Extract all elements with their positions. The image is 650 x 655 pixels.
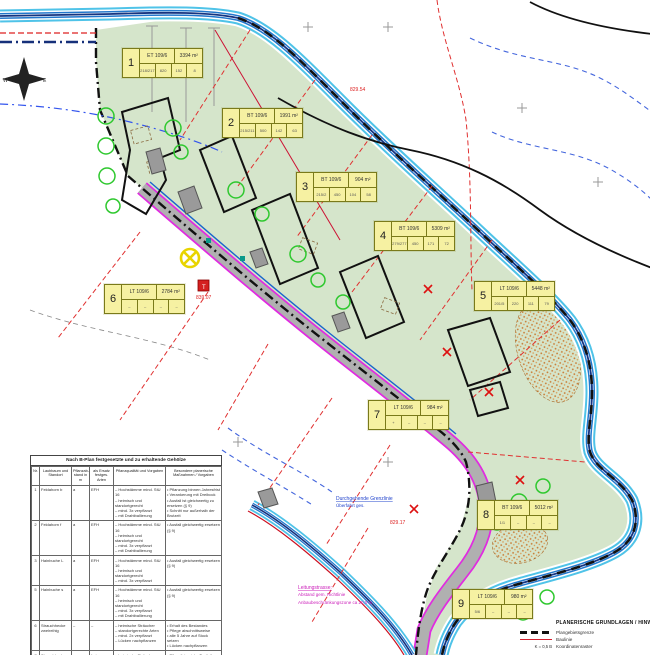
table-cell: – Hochstämme mind. StU 16 – heimisch und… bbox=[114, 485, 166, 520]
parcel-label-7: 7LT 109/6984 m²+––– bbox=[368, 400, 449, 430]
table-cell: – Hochstämme mind. StU 16 – heimisch und… bbox=[114, 556, 166, 586]
map-annotation: 829.17 bbox=[390, 520, 406, 526]
legend-label: Baulinie bbox=[556, 637, 572, 642]
table-cell: Hainbuche s bbox=[40, 585, 72, 620]
table-cell: 1 bbox=[32, 485, 40, 520]
table-cell: – Hochstämme mind. StU 16 – heimisch und… bbox=[114, 585, 166, 620]
parcel-detail-cell: – bbox=[511, 516, 527, 530]
parcel-detail-cell: 215/2 bbox=[314, 188, 330, 202]
legend-row: K = 0,5 BKoordinatenraster bbox=[518, 643, 648, 650]
parcel-code: LT 109/6 bbox=[386, 401, 421, 415]
map-annotation: Überfahrt ges. bbox=[336, 502, 365, 508]
parcel-label-3: 3BT 109/6904 m²215/245010458 bbox=[296, 172, 377, 202]
parcel-code: BT 109/6 bbox=[314, 173, 349, 187]
legend-title: PLANERISCHE GRUNDLAGEN / HINWEISE bbox=[518, 620, 648, 626]
red-line-sample bbox=[518, 639, 552, 641]
table-row: 2Feldahorn faEFH– Hochstämme mind. StU 1… bbox=[32, 520, 222, 555]
parcel-number: 9 bbox=[453, 590, 470, 618]
table-cell: • Erhalt des Bestandes • Pflege abschnit… bbox=[166, 621, 222, 651]
map-annotation: 829.54 bbox=[350, 87, 366, 93]
parcel-detail-cell: – bbox=[418, 416, 434, 430]
table-row: 5Hainbuche saEFH– Hochstämme mind. StU 1… bbox=[32, 585, 222, 620]
parcel-detail-cell: – bbox=[486, 605, 502, 619]
parcel-detail-cell: 142 bbox=[272, 124, 288, 138]
parcel-label-6: 6LT 109/62784 m²–––– bbox=[104, 284, 185, 314]
parcel-number: 4 bbox=[375, 222, 392, 250]
table-cell: a bbox=[72, 485, 90, 520]
table-cell: 6 bbox=[32, 621, 40, 651]
parcel-detail-cell: 215/211 bbox=[240, 124, 256, 138]
parcel-detail-cell: 1/1 bbox=[495, 516, 511, 530]
table-cell: a bbox=[72, 556, 90, 586]
parcel-number: 7 bbox=[369, 401, 386, 429]
legend-sample-text: K = 0,5 B bbox=[518, 644, 552, 649]
parcel-code: BT 109/6 bbox=[240, 109, 275, 123]
parcel-code: LT 109/6 bbox=[122, 285, 157, 299]
table-cell: EFH bbox=[90, 585, 114, 620]
parcel-detail-cell: 220 bbox=[508, 297, 524, 311]
parcel-detail-cell: – bbox=[154, 300, 170, 314]
parcel-number: 1 bbox=[123, 49, 140, 77]
parcel-detail-cell: – bbox=[517, 605, 532, 619]
map-annotation: T bbox=[202, 285, 206, 291]
table-header-cell: Pflanzqualität und Vorgaben bbox=[114, 467, 166, 486]
parcel-code: LT 109/6 bbox=[470, 590, 505, 604]
parcel-detail-cell: 450 bbox=[330, 188, 346, 202]
planting-table: Nach B-Plan festgesetzte und zu erhalten… bbox=[30, 455, 222, 655]
parcel-label-1: 1ET 109/63394 m²218/2178201528 bbox=[122, 48, 203, 78]
parcel-label-2: 2BT 109/61991 m²215/21150014263 bbox=[222, 108, 303, 138]
parcel-label-4: 4BT 109/65309 m²279/27745017172 bbox=[374, 221, 455, 251]
table-cell: • Ausfall gleichwertig ersetzen (§ 9) bbox=[166, 585, 222, 620]
table-cell: a bbox=[72, 585, 90, 620]
parcel-detail-cell: – bbox=[169, 300, 184, 314]
table-cell: Strauchhecke einreihig bbox=[40, 651, 72, 655]
parcel-detail-cell: 279/277 bbox=[392, 237, 408, 251]
parcel-code: BT 109/6 bbox=[392, 222, 427, 236]
table-cell: Feldahorn b bbox=[40, 485, 72, 520]
parcel-code: BT 109/6 bbox=[495, 501, 530, 515]
table-cell: frei wachsende Landschafts- hecke bbox=[90, 651, 114, 655]
table-cell: • Ausfall gleichwertig ersetzen (§ 9) bbox=[166, 520, 222, 555]
parcel-detail-cell: 111 bbox=[524, 297, 540, 311]
parcel-detail-cell: 152 bbox=[172, 64, 188, 78]
table-cell: EFH bbox=[90, 556, 114, 586]
parcel-detail-cell: 820 bbox=[156, 64, 172, 78]
stream-band-south bbox=[248, 505, 412, 655]
map-annotation: Leitungstrasse: bbox=[298, 585, 332, 591]
legend-row: Plangebietsgrenze bbox=[518, 629, 648, 636]
parcel-detail-cell: 218/217 bbox=[140, 64, 156, 78]
map-annotation: Abstand gem. Richtlinie bbox=[298, 592, 346, 597]
legend-row: Baulinie bbox=[518, 636, 648, 643]
parcel-area: 1991 m² bbox=[275, 109, 302, 123]
table-row: 3Hainbuche LaEFH– Hochstämme mind. StU 1… bbox=[32, 556, 222, 586]
parcel-detail-cell: – bbox=[502, 605, 518, 619]
table-cell: Strauchhecke zweireihig bbox=[40, 621, 72, 651]
table-cell: – bbox=[72, 621, 90, 651]
parcel-area: 904 m² bbox=[349, 173, 376, 187]
table-row: 1Feldahorn baEFH– Hochstämme mind. StU 1… bbox=[32, 485, 222, 520]
parcel-detail-cell: 72 bbox=[439, 237, 454, 251]
table-cell: EFH bbox=[90, 485, 114, 520]
parcel-detail-cell: – bbox=[122, 300, 138, 314]
table-cell: 5 bbox=[32, 585, 40, 620]
parcel-area: 980 m² bbox=[505, 590, 532, 604]
table-cell: a bbox=[72, 520, 90, 555]
table-cell bbox=[72, 651, 90, 655]
table-cell: Hainbuche L bbox=[40, 556, 72, 586]
parcel-area: 3394 m² bbox=[175, 49, 202, 63]
parcel-label-8: 8BT 109/65012 m²1/1––– bbox=[477, 500, 558, 530]
table-cell: • Ausfall gleichwertig ersetzen (§ 9) bbox=[166, 556, 222, 586]
map-annotation: Anbaubeschränkungszone ca 20,0 m bbox=[298, 600, 373, 605]
table-header-cell: Pflanzab- stand in m bbox=[72, 467, 90, 486]
parcel-detail-cell: 201/5 bbox=[492, 297, 508, 311]
table-cell: 2 bbox=[32, 520, 40, 555]
table-cell: – Hochstämme mind. StU 16 – heimisch und… bbox=[114, 520, 166, 555]
compass-rose bbox=[2, 57, 46, 101]
table-cell: Feldahorn f bbox=[40, 520, 72, 555]
parcel-detail-cell: 500 bbox=[256, 124, 272, 138]
parcel-detail-cell: 63 bbox=[287, 124, 302, 138]
parcel-number: 3 bbox=[297, 173, 314, 201]
parcel-detail-cell: 450 bbox=[408, 237, 424, 251]
table-header-cell: Nr. bbox=[32, 467, 40, 486]
parcel-detail-cell: 5/6 bbox=[470, 605, 486, 619]
parcel-number: 6 bbox=[105, 285, 122, 313]
table-header-cell: Besondere planerische Maßnahmen / Vorgab… bbox=[166, 467, 222, 486]
table-cell: 3 bbox=[32, 556, 40, 586]
parcel-area: 5012 m² bbox=[530, 501, 557, 515]
legend-label: Plangebietsgrenze bbox=[556, 630, 594, 635]
map-annotation: 839.07 bbox=[196, 295, 212, 301]
parcel-number: 8 bbox=[478, 501, 495, 529]
table-header-cell: Laubbaum und Standort bbox=[40, 467, 72, 486]
parcel-detail-cell: – bbox=[138, 300, 154, 314]
table-cell: – bbox=[90, 621, 114, 651]
table-cell: – heimische Sträucher – standortgerechte… bbox=[114, 651, 166, 655]
planting-table-grid: Nr.Laubbaum und StandortPflanzab- stand … bbox=[31, 466, 222, 655]
parcel-detail-cell: – bbox=[527, 516, 543, 530]
parcel-area: 5309 m² bbox=[427, 222, 454, 236]
table-cell: • Pflanzliste siehe Textteil bbox=[166, 651, 222, 655]
parcel-detail-cell: + bbox=[386, 416, 402, 430]
table-cell: EFH bbox=[90, 520, 114, 555]
table-cell: • Pflanzung binnen Jahresfrist • Veranke… bbox=[166, 485, 222, 520]
parcel-label-5: 5LT 109/65448 m²201/522011179 bbox=[474, 281, 555, 311]
parcel-detail-cell: 171 bbox=[424, 237, 440, 251]
utility-crossing-symbol bbox=[181, 249, 199, 267]
table-row: 6Strauchhecke zweireihig––– heimische St… bbox=[32, 621, 222, 651]
table-header-row: Nr.Laubbaum und StandortPflanzab- stand … bbox=[32, 467, 222, 486]
table-cell: – heimische Sträucher – standortgerechte… bbox=[114, 621, 166, 651]
parcel-detail-cell: – bbox=[433, 416, 448, 430]
parcel-area: 984 m² bbox=[421, 401, 448, 415]
legend-label: Koordinatenraster bbox=[556, 644, 593, 649]
parcel-detail-cell: 104 bbox=[346, 188, 362, 202]
planting-table-title: Nach B-Plan festgesetzte und zu erhalten… bbox=[31, 456, 221, 466]
parcel-label-9: 9LT 109/6980 m²5/6––– bbox=[452, 589, 533, 619]
map-annotation: W bbox=[3, 78, 8, 84]
map-annotation: E bbox=[43, 78, 47, 84]
table-row: 7Strauchhecke einreihigfrei wachsende La… bbox=[32, 651, 222, 655]
boundary-line-sample bbox=[518, 631, 552, 634]
table-cell: 7 bbox=[32, 651, 40, 655]
parcel-number: 5 bbox=[475, 282, 492, 310]
parcel-number: 2 bbox=[223, 109, 240, 137]
parcel-detail-cell: 79 bbox=[539, 297, 554, 311]
table-header-cell: als Ersatz festges. Arten bbox=[90, 467, 114, 486]
parcel-code: LT 109/6 bbox=[492, 282, 527, 296]
map-legend: PLANERISCHE GRUNDLAGEN / HINWEISE Plange… bbox=[518, 620, 648, 650]
parcel-area: 2784 m² bbox=[157, 285, 184, 299]
site-plan-canvas: 829.54839.07Durchgehende GrenzlinieÜberf… bbox=[0, 0, 650, 655]
parcel-detail-cell: 8 bbox=[187, 64, 202, 78]
parcel-code: ET 109/6 bbox=[140, 49, 175, 63]
parcel-detail-cell: 58 bbox=[361, 188, 376, 202]
parcel-detail-cell: – bbox=[542, 516, 557, 530]
parcel-area: 5448 m² bbox=[527, 282, 554, 296]
map-annotation: Durchgehende Grenzlinie bbox=[336, 496, 393, 502]
parcel-detail-cell: – bbox=[402, 416, 418, 430]
